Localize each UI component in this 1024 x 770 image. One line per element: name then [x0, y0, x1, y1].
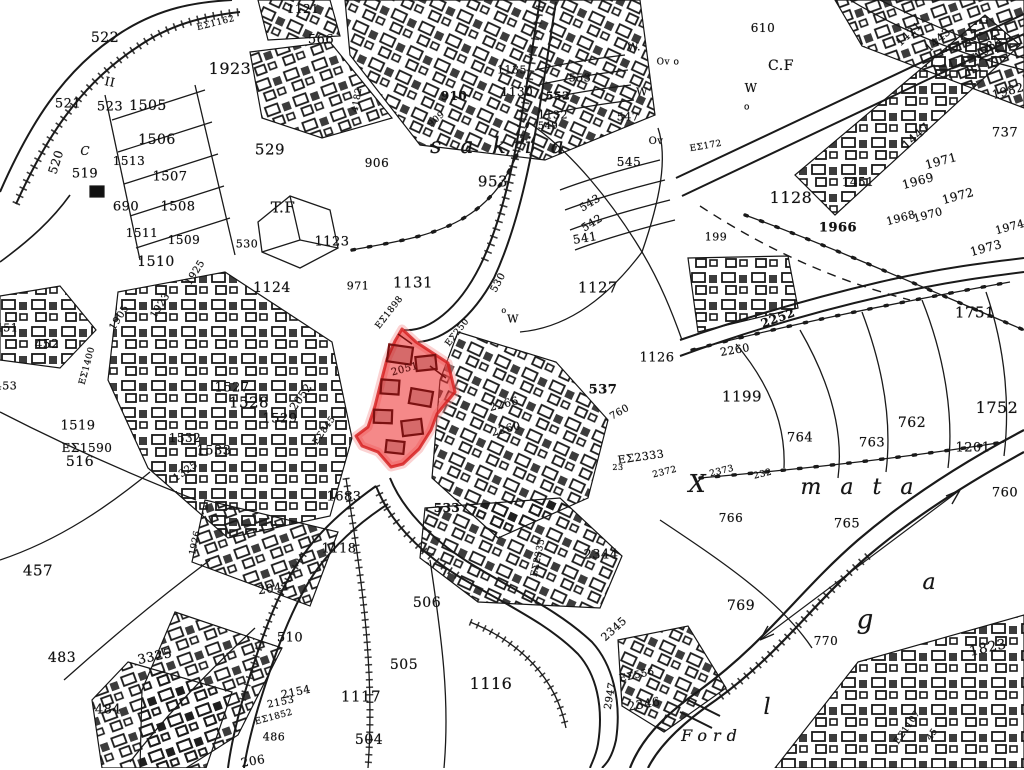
- buildings-layer: [0, 0, 1024, 768]
- map-stage: 522521II52315051506151315076901508151115…: [0, 0, 1024, 768]
- map-canvas: [0, 0, 1024, 768]
